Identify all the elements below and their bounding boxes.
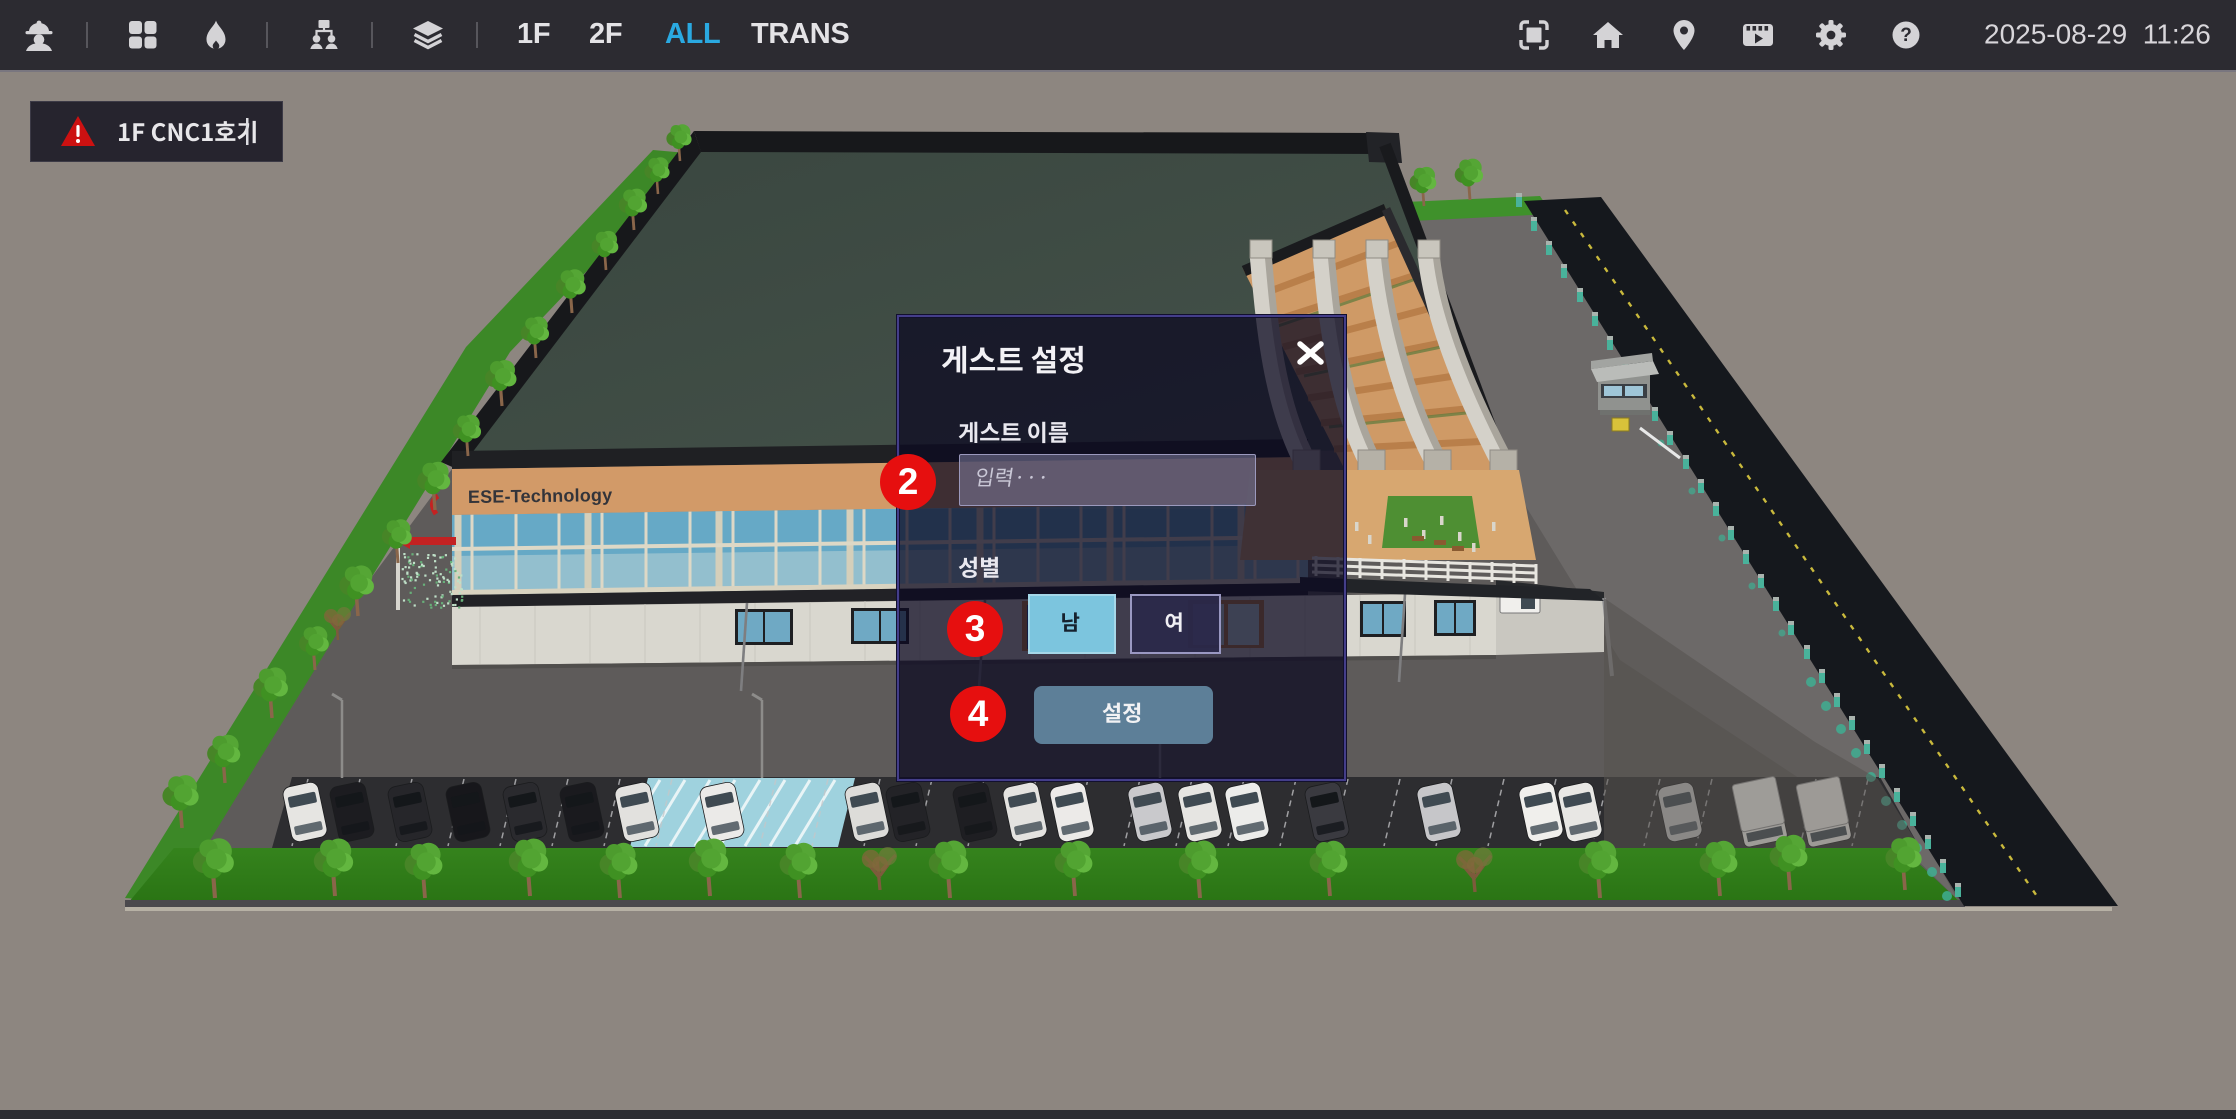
- svg-text:ESE-Technology: ESE-Technology: [468, 485, 613, 507]
- svg-text:?: ?: [1900, 25, 1912, 46]
